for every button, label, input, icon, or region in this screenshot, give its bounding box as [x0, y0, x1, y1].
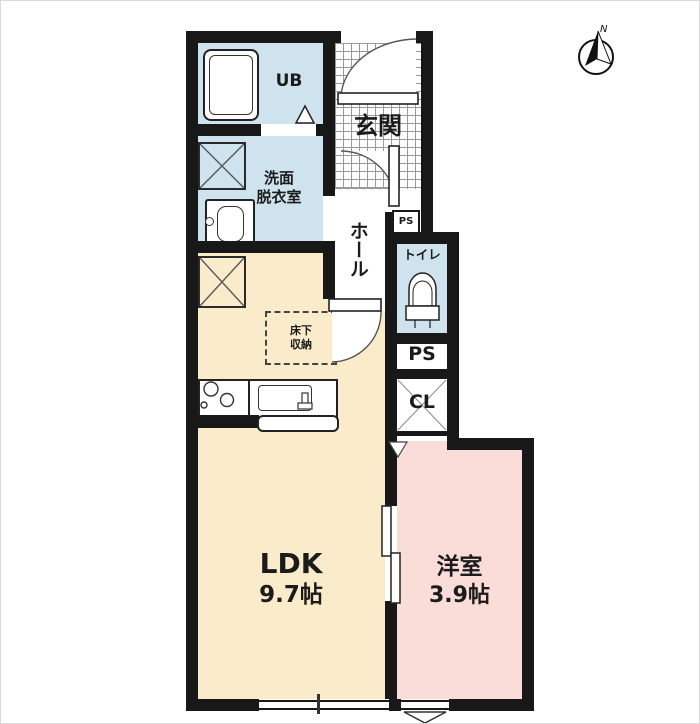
wall-ub-bottom-a	[186, 124, 261, 136]
wall-hall-ldk	[323, 253, 335, 299]
wall-ldk-western-b	[385, 601, 397, 699]
wall-washroom-bottom	[186, 241, 335, 253]
wall-western-top	[447, 438, 534, 450]
hall-label: ホール	[345, 197, 369, 302]
underfloor-storage: 床下 収納	[265, 311, 337, 365]
kitchen-sink	[258, 385, 312, 411]
western-room-window	[401, 699, 449, 723]
wall-washroom-hall	[323, 136, 335, 196]
pipe-space-upper-label: PS	[399, 216, 414, 229]
underfloor-storage-label: 床下 収納	[290, 324, 312, 352]
toilet-label: トイレ	[399, 247, 445, 263]
western-room-label: 洋室 3.9帖	[397, 553, 522, 609]
wall-bottom-b	[389, 699, 401, 711]
wall-western-right	[522, 438, 534, 711]
closet-label: CL	[397, 391, 447, 415]
wall-bottom-a	[186, 699, 259, 711]
refrigerator-space	[198, 256, 246, 308]
kitchen-stove	[198, 379, 253, 420]
wall-entrance-right	[421, 31, 433, 244]
north-label: N	[600, 24, 608, 35]
wall-ldk-western-a	[385, 433, 397, 506]
bathtub	[203, 49, 259, 121]
wall-ub-bottom-b	[316, 124, 335, 136]
ldk-label: LDK 9.7帖	[221, 546, 361, 610]
pipe-space-label: PS	[397, 343, 447, 367]
kitchen-counter	[257, 415, 339, 432]
unit-bath-label: UB	[259, 71, 319, 92]
wall-ub-entrance	[323, 31, 335, 136]
north-compass-icon: N	[579, 24, 613, 74]
wall-bottom-c	[449, 699, 534, 711]
pipe-space-upper-box: PS	[392, 210, 420, 234]
wall-top-a	[186, 31, 341, 43]
washroom-label: 洗面 脱衣室	[236, 169, 322, 207]
entrance-label: 玄関	[335, 111, 421, 141]
wall-ps-bottom	[385, 369, 459, 379]
wall-hall-toilet-col	[385, 212, 397, 433]
kitchen-sink-unit	[248, 379, 338, 420]
floor-plan: 床下 収納 PS	[0, 0, 700, 724]
